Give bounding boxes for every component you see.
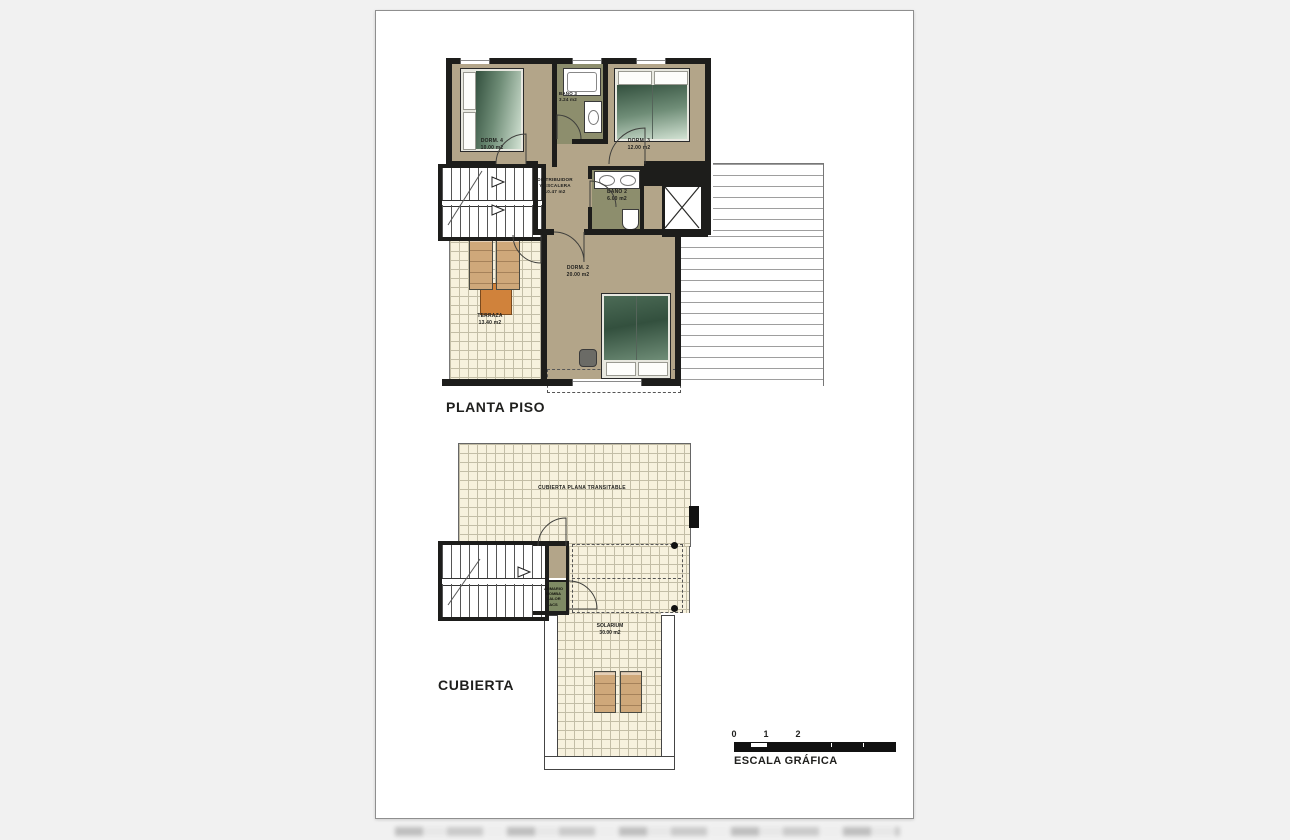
pillow [463, 72, 476, 110]
plan-title-cubierta: CUBIERTA [438, 677, 514, 693]
pillow [654, 71, 688, 85]
solarium-area: 30.00 m2 [580, 630, 640, 637]
wall [644, 161, 711, 186]
stair-treads [442, 168, 542, 200]
staircase [438, 164, 546, 241]
bed-split-line [636, 296, 637, 360]
room-label-dorm2: DORM. 2 20.00 m2 [552, 265, 604, 278]
room-label-dorm3: DORM. 3 12.00 m2 [609, 138, 669, 151]
room-label-terraza: TERRAZA 13.40 m2 [464, 313, 516, 326]
stair-treads [442, 545, 545, 578]
scale-tick-2: 2 [795, 729, 800, 739]
scale-bar-segment [751, 743, 767, 747]
roof-scupper-marker [689, 506, 699, 528]
pergola-upper [713, 163, 824, 237]
sun-lounger [620, 671, 642, 713]
room-label-bano2: BAÑO 2 6.00 m2 [596, 189, 638, 202]
bed-dorm2 [601, 293, 671, 379]
wall [533, 611, 569, 615]
pillow [638, 362, 668, 376]
wall [640, 170, 644, 233]
wall [701, 186, 711, 233]
scale-tick-1: 1 [763, 729, 768, 739]
roof-staircase [438, 541, 549, 621]
scale-caption: ESCALA GRÁFICA [734, 755, 838, 767]
plan-title-planta-piso: PLANTA PISO [446, 399, 545, 415]
wall [572, 139, 608, 144]
armario-label: ARMARIO BOMBA CALOR ACS [540, 586, 567, 607]
roof-deck-tiles [458, 443, 691, 547]
toilet [622, 209, 639, 230]
pergola-lower [681, 236, 824, 386]
roof-drain-dot [671, 542, 678, 549]
armario-line2: BOMBA CALOR [540, 591, 567, 601]
basin-bowl [588, 110, 599, 125]
scale-tick-0: 0 [731, 729, 736, 739]
pillow [618, 71, 652, 85]
wall [588, 166, 644, 170]
solarium-wall-left [544, 615, 558, 770]
wall [533, 541, 569, 546]
wall [588, 166, 592, 179]
solarium-label: SOLARIUM 30.00 m2 [580, 623, 640, 636]
stair-treads [442, 205, 542, 237]
wall [446, 161, 496, 167]
room-area: 12.00 m2 [609, 145, 669, 152]
stair-treads [442, 584, 545, 617]
room-label-dorm4: DORM. 4 10.00 m2 [464, 138, 520, 151]
room-area: 3.24 m2 [554, 97, 582, 103]
window [460, 58, 490, 64]
sink-bowl [620, 175, 636, 186]
sun-lounger [496, 238, 520, 290]
window [636, 58, 666, 64]
sun-lounger [594, 671, 616, 713]
sink-bowl [599, 175, 615, 186]
bed-split-line [652, 85, 653, 139]
shower-inner [567, 72, 597, 92]
bed-dorm3 [614, 68, 690, 142]
roof-deck-label: CUBIERTA PLANA TRANSITABLE [522, 485, 642, 492]
room-area: 10.47 m2 [536, 189, 574, 195]
wall [552, 63, 557, 167]
solarium-wall-bottom [544, 756, 675, 770]
room-area: 6.00 m2 [596, 196, 638, 203]
wall [541, 233, 547, 379]
scale-bar-divider [863, 743, 864, 747]
room-label-bano3: BAÑO 3 3.24 m2 [554, 91, 582, 103]
roof-dashed-line [572, 578, 681, 579]
bottom-blurred-text [395, 827, 900, 836]
wall [603, 63, 608, 144]
washbasin [584, 101, 602, 133]
desk-chair [579, 349, 597, 367]
double-sink-counter [594, 171, 640, 189]
room-area: 10.00 m2 [464, 145, 520, 152]
wall [675, 233, 681, 386]
room-area: 20.00 m2 [552, 272, 604, 279]
window [572, 58, 602, 64]
drawing-sheet: DORM. 4 10.00 m2 BAÑO 3 3.24 m2 DORM. 3 … [375, 10, 914, 819]
wall [533, 163, 538, 233]
terrace-slider-window [572, 379, 642, 386]
wall [584, 229, 711, 235]
roof-drain-dot [671, 605, 678, 612]
sun-lounger [469, 238, 493, 290]
wall [446, 58, 452, 168]
solarium-wall-right [661, 615, 675, 770]
pillow [606, 362, 636, 376]
scale-bar [734, 742, 896, 752]
roof-deck-text: CUBIERTA PLANA TRANSITABLE [522, 485, 642, 492]
scale-bar-divider [831, 743, 832, 747]
wall [442, 379, 681, 386]
scale-bar-segment [735, 743, 751, 747]
room-area: 13.40 m2 [464, 320, 516, 327]
armario-line3: ACS [540, 602, 567, 607]
room-label-distribuidor: DISTRIBUIDOR Y ESCALERA 10.47 m2 [536, 177, 574, 195]
